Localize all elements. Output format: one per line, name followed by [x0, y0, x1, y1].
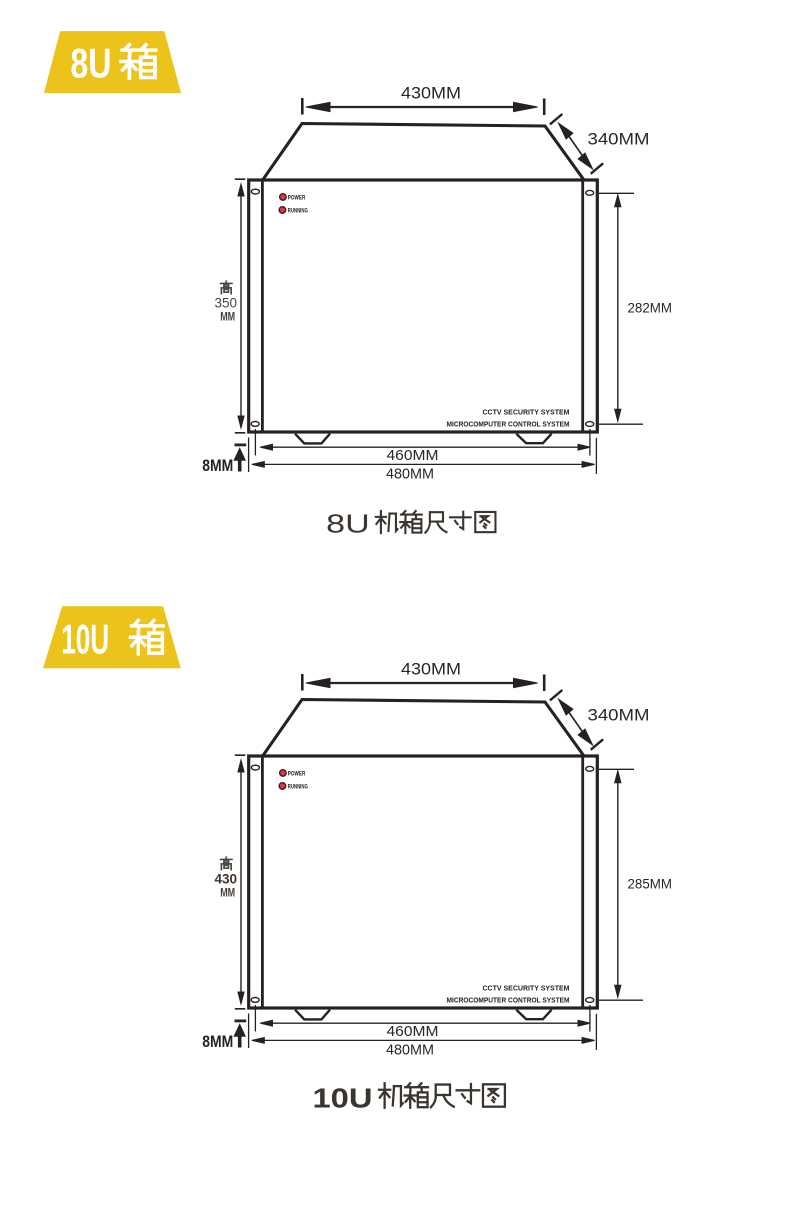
svg-text:MM: MM: [220, 311, 235, 323]
svg-text:RUNNING: RUNNING: [288, 783, 308, 790]
svg-text:430MM: 430MM: [401, 84, 461, 103]
svg-text:282MM: 282MM: [628, 300, 673, 315]
svg-text:MM: MM: [220, 887, 235, 899]
svg-text:350: 350: [215, 296, 238, 311]
svg-text:8U: 8U: [70, 40, 111, 87]
svg-text:10U: 10U: [313, 1082, 373, 1113]
svg-text:POWER: POWER: [288, 194, 306, 201]
svg-text:430MM: 430MM: [401, 660, 461, 679]
svg-text:430: 430: [215, 872, 238, 887]
svg-text:CCTV SECURITY SYSTEM: CCTV SECURITY SYSTEM: [483, 983, 570, 992]
svg-text:RUNNING: RUNNING: [288, 207, 308, 214]
svg-text:480MM: 480MM: [386, 465, 434, 482]
svg-text:340MM: 340MM: [588, 706, 650, 725]
svg-text:MICROCOMPUTER CONTROL SYSTEM: MICROCOMPUTER CONTROL SYSTEM: [447, 996, 570, 1005]
svg-text:8MM: 8MM: [202, 1032, 233, 1051]
svg-text:MICROCOMPUTER CONTROL SYSTEM: MICROCOMPUTER CONTROL SYSTEM: [447, 420, 570, 429]
svg-text:CCTV SECURITY SYSTEM: CCTV SECURITY SYSTEM: [483, 407, 570, 416]
svg-text:10U: 10U: [61, 616, 109, 663]
svg-text:480MM: 480MM: [386, 1041, 434, 1058]
svg-text:460MM: 460MM: [387, 1023, 439, 1040]
svg-text:460MM: 460MM: [387, 447, 439, 464]
svg-text:8MM: 8MM: [202, 456, 233, 475]
svg-text:285MM: 285MM: [628, 876, 673, 891]
svg-text:340MM: 340MM: [588, 130, 650, 149]
svg-text:POWER: POWER: [288, 770, 306, 777]
svg-text:8U: 8U: [326, 511, 370, 539]
